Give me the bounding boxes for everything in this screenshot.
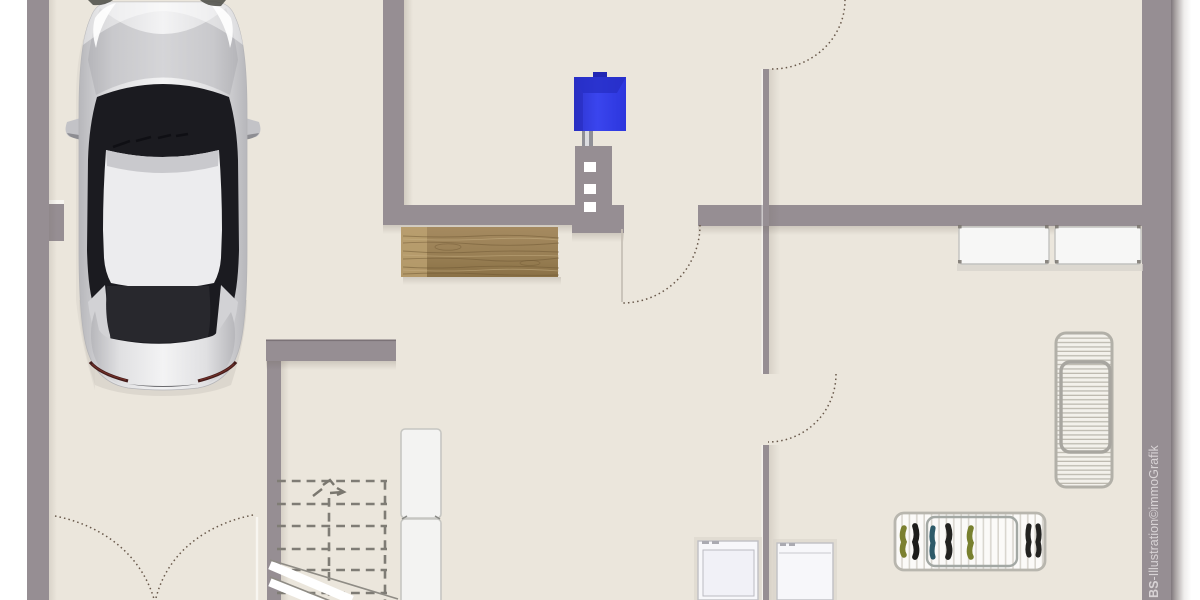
svg-text:BS-Illustration©immoGrafik: BS-Illustration©immoGrafik <box>1147 445 1161 598</box>
